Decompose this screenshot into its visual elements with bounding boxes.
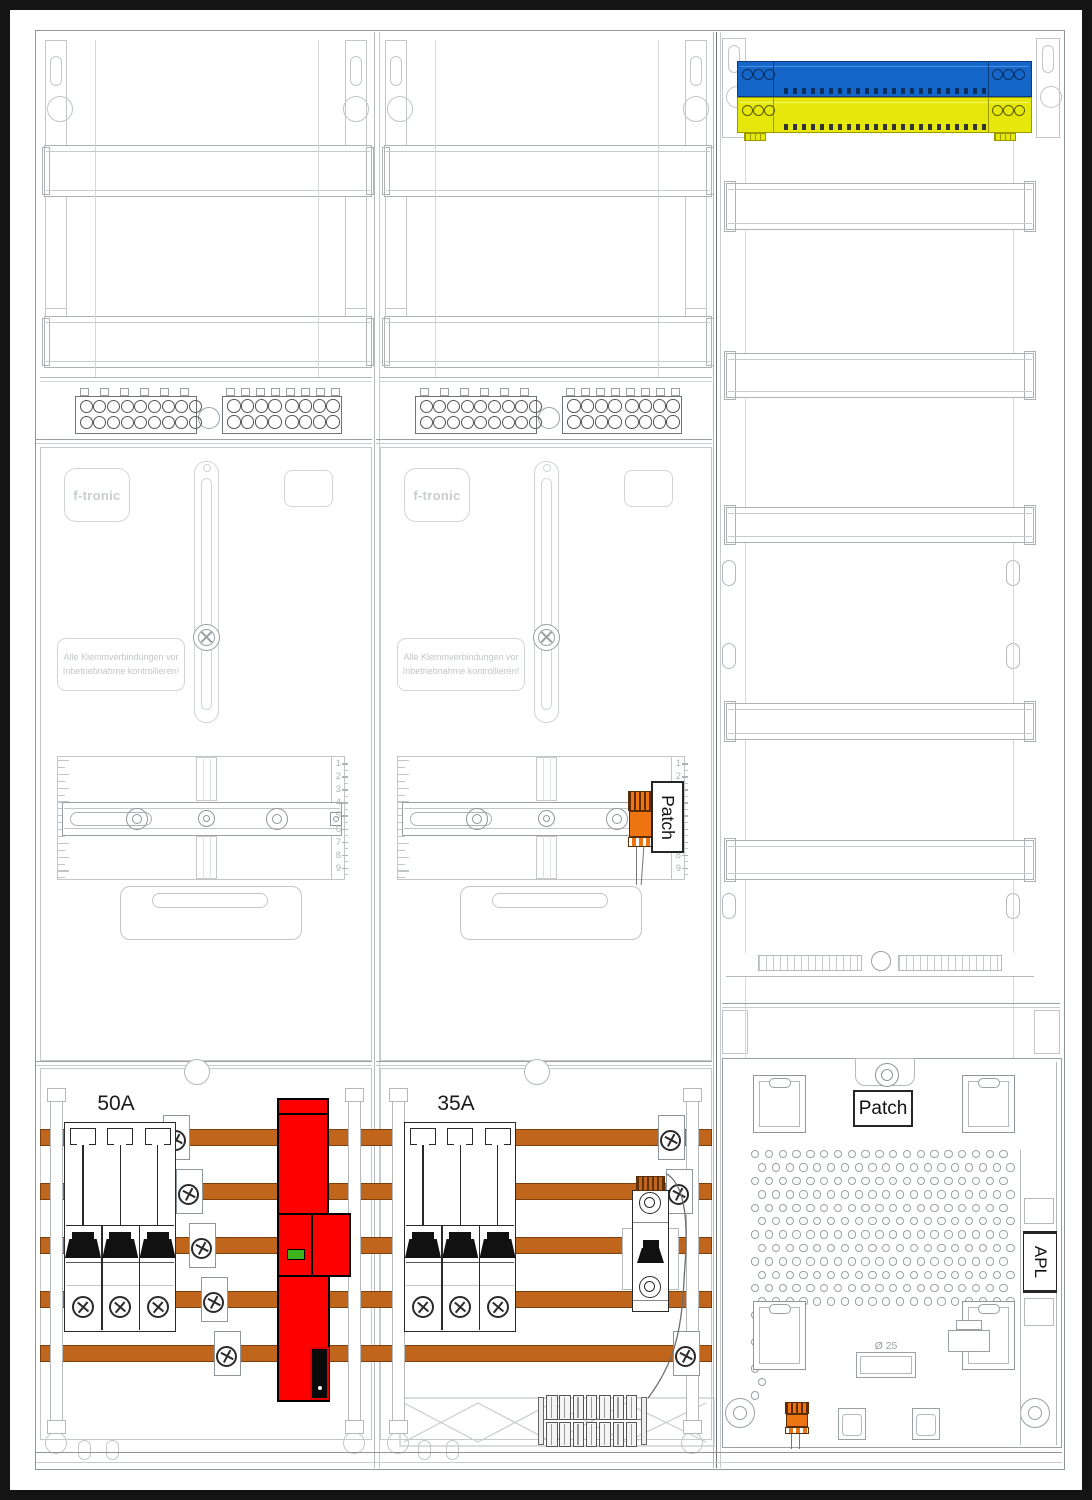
line — [46, 322, 370, 323]
vent-hole — [944, 1284, 952, 1292]
line — [406, 1225, 514, 1226]
terminal-circle — [80, 416, 93, 429]
vent-hole — [882, 1190, 890, 1198]
sls-switch-upper — [277, 1098, 329, 1215]
vent-hole — [868, 1271, 876, 1279]
vent-hole — [979, 1163, 987, 1171]
fuse-handle — [487, 1232, 509, 1239]
ruler-tick — [398, 767, 405, 768]
terminal-circle — [80, 400, 93, 413]
terminal-tab — [271, 388, 280, 396]
terminal-tab — [440, 388, 449, 396]
blank-nameplate — [624, 470, 673, 507]
apl-channel-box — [1024, 1298, 1054, 1326]
vent-hole — [999, 1204, 1007, 1212]
ruler-tick — [58, 877, 65, 878]
line — [728, 709, 1032, 710]
terminal-tab — [581, 388, 590, 396]
vent-hole — [1006, 1217, 1014, 1225]
rail-cap — [345, 1088, 364, 1102]
vent-hole — [834, 1230, 842, 1238]
warning-label-left: Alle Klemmverbindungen vor Inbetriebnahm… — [57, 638, 185, 691]
scale-number: 3 — [332, 785, 341, 795]
terminal-circle — [420, 416, 433, 429]
vent-hole — [848, 1177, 856, 1185]
terminal-circle — [625, 399, 639, 413]
line — [210, 757, 211, 801]
vent-hole — [806, 1257, 814, 1265]
vent-hole — [1006, 1271, 1014, 1279]
terminal-circle — [299, 415, 313, 429]
comb-strip — [898, 955, 1002, 971]
vent-hole — [999, 1257, 1007, 1265]
rail-cap — [683, 1420, 702, 1434]
vent-hole — [972, 1230, 980, 1238]
vent-hole — [758, 1190, 766, 1198]
vent-hole — [875, 1177, 883, 1185]
line — [1013, 398, 1014, 507]
center-screw-hole — [198, 407, 220, 429]
footer-slot — [106, 1440, 119, 1460]
rail-end — [42, 147, 50, 195]
terminal-circle — [107, 400, 120, 413]
terminal-circle — [285, 415, 299, 429]
line — [36, 1452, 1062, 1453]
line — [380, 377, 712, 378]
line — [550, 757, 551, 801]
vent-hole — [799, 1244, 807, 1252]
line — [745, 543, 746, 703]
terminal-circle — [447, 400, 460, 413]
terminal-tab — [286, 388, 295, 396]
slot-pin — [203, 464, 211, 472]
breaker-wire — [600, 1160, 720, 1420]
rail-end — [1024, 505, 1036, 545]
line — [740, 66, 1029, 67]
line — [791, 1434, 792, 1449]
bracket-hole — [1040, 86, 1062, 108]
line — [726, 976, 1034, 977]
line — [1013, 140, 1014, 183]
line — [617, 1424, 618, 1445]
line — [745, 740, 746, 840]
hook-hole-inner — [881, 1069, 893, 1081]
line — [988, 62, 989, 96]
vent-hole — [868, 1244, 876, 1252]
line — [157, 1145, 158, 1225]
panel-notch — [184, 1059, 210, 1085]
ruler-tick — [58, 781, 65, 782]
vent-hole — [765, 1204, 773, 1212]
terminal-circle — [107, 416, 120, 429]
terminal-circle — [567, 415, 581, 429]
terminal-circle — [241, 399, 255, 413]
rail-mount-comb — [744, 133, 766, 141]
vent-hole — [827, 1297, 835, 1305]
terminal-circle — [502, 416, 515, 429]
bracket-slot — [722, 893, 736, 919]
rail-end — [366, 318, 374, 366]
vent-hole — [896, 1190, 904, 1198]
vent-hole — [875, 1257, 883, 1265]
vent-hole — [917, 1204, 925, 1212]
vent-hole — [786, 1244, 794, 1252]
vent-hole — [937, 1271, 945, 1279]
patch-connector-body — [786, 1414, 808, 1427]
vent-hole — [944, 1257, 952, 1265]
terminal-circle — [461, 416, 474, 429]
vent-hole — [772, 1190, 780, 1198]
vent-hole — [855, 1244, 863, 1252]
bracket-slot — [50, 56, 62, 86]
bracket-hole — [387, 96, 413, 122]
line — [720, 32, 721, 1468]
terminal-circle — [189, 416, 202, 429]
line — [728, 359, 1032, 360]
vent-hole — [910, 1163, 918, 1171]
terminal-circle — [653, 399, 667, 413]
scale-number: 9 — [332, 864, 341, 874]
terminal-circle — [529, 400, 542, 413]
terminal-tab — [301, 388, 310, 396]
hole — [733, 1406, 747, 1420]
vent-hole — [799, 1271, 807, 1279]
vent-hole — [855, 1190, 863, 1198]
terminal-circle — [285, 399, 299, 413]
ruler-tick — [684, 822, 688, 823]
ruler-tick — [682, 868, 688, 870]
terminal-circle — [742, 69, 753, 80]
slide-screw — [543, 815, 550, 822]
vent-hole — [930, 1230, 938, 1238]
vent-hole — [786, 1271, 794, 1279]
bracket-hole — [47, 96, 73, 122]
terminal-circle — [625, 415, 639, 429]
terminal-circle — [581, 415, 595, 429]
slot-pin — [543, 464, 551, 472]
ruler-tick — [684, 835, 688, 836]
line — [386, 151, 710, 152]
ruler-tick — [344, 822, 348, 823]
ruler-tick — [342, 776, 348, 778]
patch-label-middle-text: Patch — [657, 795, 678, 840]
terminal-strip-end — [538, 1397, 544, 1445]
adjust-slot-inner — [201, 478, 212, 710]
sls-switch-divider — [311, 1215, 313, 1275]
vent-hole — [751, 1257, 759, 1265]
vent-hole — [944, 1230, 952, 1238]
terminal-tab — [671, 388, 680, 396]
ruler-tick — [342, 789, 348, 791]
cable-gland-diameter-label: Ø 25 — [856, 1340, 916, 1352]
line — [577, 1397, 578, 1418]
ruler-tick — [58, 850, 65, 851]
terminal-circle — [1003, 69, 1014, 80]
handle-slot — [492, 893, 608, 908]
line — [728, 223, 1032, 224]
mounting-rail — [50, 1096, 63, 1426]
rail-end — [382, 318, 390, 366]
scale-number: 7 — [332, 838, 341, 848]
bracket-hole — [343, 96, 369, 122]
vent-hole — [917, 1257, 925, 1265]
vent-hole — [924, 1190, 932, 1198]
ruler-tick — [398, 774, 409, 775]
vent-hole — [848, 1230, 856, 1238]
bracket-hole — [683, 96, 709, 122]
sls-switch-cap-line — [279, 1113, 327, 1115]
terminal-circle — [162, 400, 175, 413]
line — [773, 62, 774, 96]
terminal-circle — [502, 400, 515, 413]
terminal-circle — [313, 399, 327, 413]
fuse-handle — [405, 1239, 441, 1258]
terminal-circle — [608, 415, 622, 429]
hole — [333, 816, 339, 822]
terminal-circle — [639, 399, 653, 413]
ruler-tick — [344, 783, 348, 784]
terminal-circle — [461, 400, 474, 413]
adjust-slot-inner — [541, 478, 552, 710]
sls-toggle-lever — [310, 1347, 329, 1400]
vent-hole — [903, 1204, 911, 1212]
vent-hole — [910, 1297, 918, 1305]
line — [728, 873, 1032, 874]
vent-hole — [979, 1271, 987, 1279]
scale-number: 2 — [332, 772, 341, 782]
center-slot — [196, 836, 217, 879]
line — [728, 189, 1032, 190]
line — [1013, 977, 1014, 1058]
cutout-slot — [769, 1078, 791, 1088]
vent-hole — [875, 1204, 883, 1212]
scale-number: 8 — [332, 851, 341, 861]
vent-hole — [861, 1230, 869, 1238]
line — [435, 40, 436, 377]
comb-strip — [758, 955, 862, 971]
ruler-tick — [342, 842, 348, 844]
terminal-circle — [742, 105, 753, 116]
line — [604, 1424, 605, 1445]
line — [64, 808, 340, 809]
vent-hole — [972, 1257, 980, 1265]
ruler-tick — [58, 864, 65, 865]
line — [799, 1434, 800, 1449]
breaker-rating-middle: 35A — [420, 1092, 492, 1118]
fuse-handle — [147, 1232, 169, 1239]
line — [422, 1145, 423, 1225]
cutout-slot — [978, 1078, 1000, 1088]
vent-hole — [792, 1204, 800, 1212]
line — [460, 1145, 461, 1225]
ruler-tick — [398, 870, 409, 871]
terminal-circle — [299, 399, 313, 413]
ruler-tick — [344, 809, 348, 810]
line — [745, 398, 746, 507]
vent-hole — [1006, 1163, 1014, 1171]
line — [728, 391, 1032, 392]
vent-hole — [806, 1177, 814, 1185]
bottom-cutout-inner — [916, 1414, 936, 1436]
terminal-tab — [611, 388, 620, 396]
line — [658, 40, 659, 377]
line — [203, 836, 204, 879]
terminal-tab — [500, 388, 509, 396]
rail-cap — [47, 1088, 66, 1102]
bracket-slot — [390, 56, 402, 86]
vent-hole — [765, 1257, 773, 1265]
vent-hole — [834, 1257, 842, 1265]
terminal-circle — [666, 399, 680, 413]
ruler-tick — [344, 874, 348, 875]
vent-hole — [875, 1230, 883, 1238]
fuse-handle — [442, 1239, 478, 1258]
terminal-circle — [189, 400, 202, 413]
terminal-circle — [639, 415, 653, 429]
terminal-circle — [753, 69, 764, 80]
fuse-handle — [72, 1232, 94, 1239]
center-slot — [536, 836, 557, 879]
vent-hole — [986, 1257, 994, 1265]
small-box — [948, 1330, 990, 1352]
handle-slot — [152, 893, 268, 908]
apl-channel-box — [1024, 1198, 1054, 1224]
line — [46, 151, 370, 152]
line — [40, 377, 372, 378]
terminal-tab — [596, 388, 605, 396]
line — [406, 1285, 514, 1286]
vent-hole — [930, 1257, 938, 1265]
fuse-handle — [412, 1232, 434, 1239]
ruler-tick — [398, 836, 405, 837]
terminal-circle — [447, 416, 460, 429]
ruler-tick — [58, 843, 69, 844]
bracket-slot — [350, 56, 362, 86]
apl-label-text: APL — [1030, 1246, 1050, 1278]
line — [551, 1397, 552, 1418]
terminal-tab — [100, 388, 109, 396]
rail-foot — [45, 1432, 67, 1454]
vent-hole — [786, 1163, 794, 1171]
center-hook — [871, 951, 891, 971]
rail-foot — [343, 1432, 365, 1454]
ruler-tick — [398, 877, 405, 878]
line — [745, 140, 746, 183]
vent-hole — [841, 1271, 849, 1279]
vent-hole — [861, 1257, 869, 1265]
vent-hole — [848, 1257, 856, 1265]
terminal-circle — [608, 399, 622, 413]
line — [550, 836, 551, 879]
ruler-tick — [58, 767, 65, 768]
vent-hole — [924, 1297, 932, 1305]
line — [577, 1424, 578, 1445]
line — [66, 1262, 174, 1263]
vent-hole — [751, 1391, 759, 1399]
ruler-tick — [398, 781, 405, 782]
vent-hole — [827, 1163, 835, 1171]
vent-hole — [993, 1271, 1001, 1279]
cutout-slot — [978, 1304, 1000, 1314]
vent-hole — [758, 1163, 766, 1171]
line — [543, 757, 544, 801]
ruler-tick — [684, 809, 688, 810]
vent-hole — [930, 1204, 938, 1212]
rail-end — [724, 701, 736, 742]
vent-hole — [868, 1163, 876, 1171]
line — [386, 322, 710, 323]
terminal-circle — [148, 416, 161, 429]
vent-hole — [930, 1177, 938, 1185]
line — [386, 190, 710, 191]
neutral-dash-row — [784, 88, 986, 94]
terminal-circle — [313, 415, 327, 429]
vent-hole — [937, 1163, 945, 1171]
line — [479, 1226, 480, 1330]
terminal-tab — [460, 388, 469, 396]
terminal-circle — [148, 400, 161, 413]
rail-end — [724, 505, 736, 545]
apl-label: APL — [1023, 1231, 1057, 1293]
vent-hole — [827, 1190, 835, 1198]
vent-hole — [799, 1217, 807, 1225]
terminal-tab — [256, 388, 265, 396]
line — [1013, 740, 1014, 840]
line — [139, 1226, 140, 1330]
ruler-tick — [398, 864, 405, 865]
center-slot — [536, 757, 557, 801]
vent-hole — [951, 1190, 959, 1198]
fuse-handle — [449, 1232, 471, 1239]
hole — [1028, 1406, 1042, 1420]
patch-connector-stripes — [785, 1402, 809, 1414]
vent-hole — [792, 1230, 800, 1238]
line — [36, 1462, 1062, 1463]
ruler-tick — [398, 843, 409, 844]
slide-screw — [203, 815, 210, 822]
center-slot — [196, 757, 217, 801]
ruler-tick — [58, 836, 65, 837]
line — [406, 1262, 514, 1263]
line — [740, 102, 1029, 103]
vent-hole — [806, 1150, 814, 1158]
sls-switch-middle — [277, 1213, 351, 1277]
vent-hole — [937, 1190, 945, 1198]
line — [728, 513, 1032, 514]
vent-hole — [779, 1177, 787, 1185]
vent-hole — [868, 1190, 876, 1198]
slide-screw — [132, 814, 142, 824]
terminal-circle — [992, 105, 1003, 116]
vent-hole — [937, 1297, 945, 1305]
fuse-handle — [109, 1232, 131, 1239]
line — [591, 1397, 592, 1418]
vent-hole — [999, 1230, 1007, 1238]
terminal-circle — [567, 399, 581, 413]
line — [36, 439, 372, 440]
terminal-tab — [480, 388, 489, 396]
cutout-inner — [759, 1307, 800, 1364]
ruler-tick — [58, 774, 69, 775]
line — [564, 1424, 565, 1445]
ruler-tick — [684, 783, 688, 784]
center-screw-hole — [538, 407, 560, 429]
side-bracket — [1034, 1010, 1060, 1054]
terminal-circle — [326, 415, 340, 429]
ruler-tick — [58, 857, 69, 858]
panel-notch — [524, 1059, 550, 1085]
vent-hole — [799, 1190, 807, 1198]
